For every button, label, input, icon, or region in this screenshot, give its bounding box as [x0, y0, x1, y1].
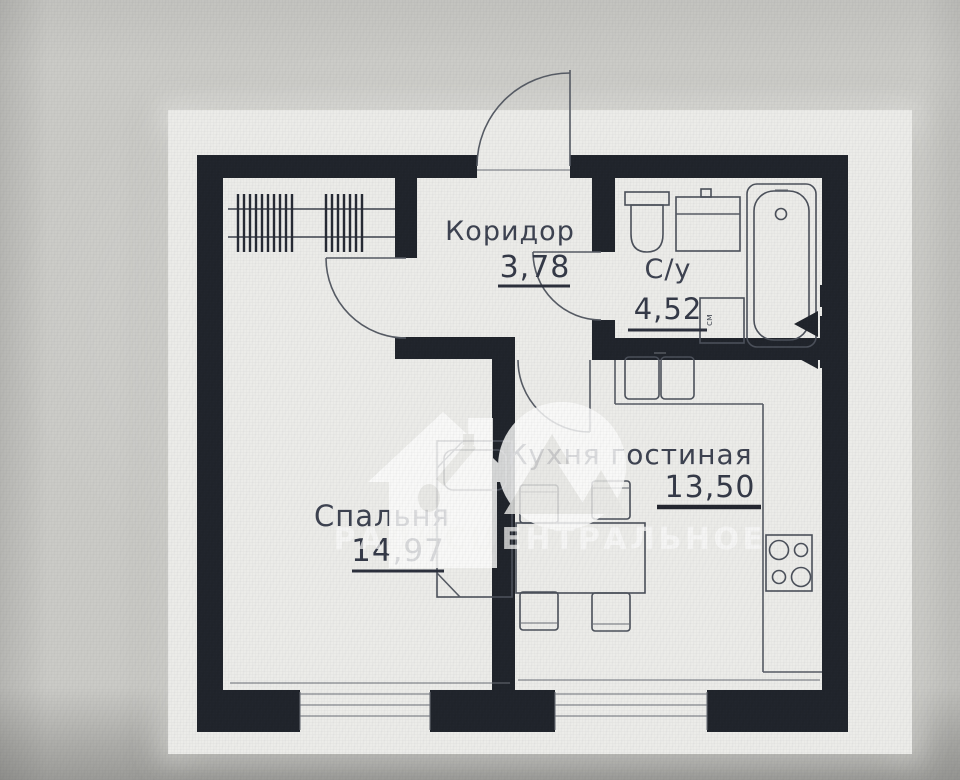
- stove: [766, 535, 812, 591]
- toilet: [625, 192, 669, 252]
- svg-text:3,78: 3,78: [500, 250, 571, 285]
- watermark-text: РАДИСЦЕНТРАЛЬНОЕ: [333, 522, 766, 557]
- washing-machine-label: см: [705, 314, 715, 326]
- bathroom-sink: [676, 189, 740, 251]
- room-label-corridor: Коридор 3,78: [445, 216, 575, 286]
- svg-text:Коридор: Коридор: [445, 216, 575, 247]
- floorplan-drawing: см: [0, 0, 960, 780]
- bedroom-door: [326, 258, 406, 338]
- washing-machine: см: [700, 298, 744, 343]
- wardrobe-hatching: [228, 194, 395, 252]
- room-label-bathroom: С/у 4,52: [628, 254, 707, 330]
- kitchen-sink: [625, 353, 694, 399]
- svg-text:С/у: С/у: [645, 254, 692, 285]
- mountain-circle-logo-icon: [498, 402, 626, 530]
- svg-text:13,50: 13,50: [665, 470, 756, 505]
- kitchen-counter: [615, 360, 822, 672]
- entrance-door: [477, 70, 570, 170]
- svg-text:4,52: 4,52: [634, 292, 703, 326]
- floorplan-photo: см: [0, 0, 960, 780]
